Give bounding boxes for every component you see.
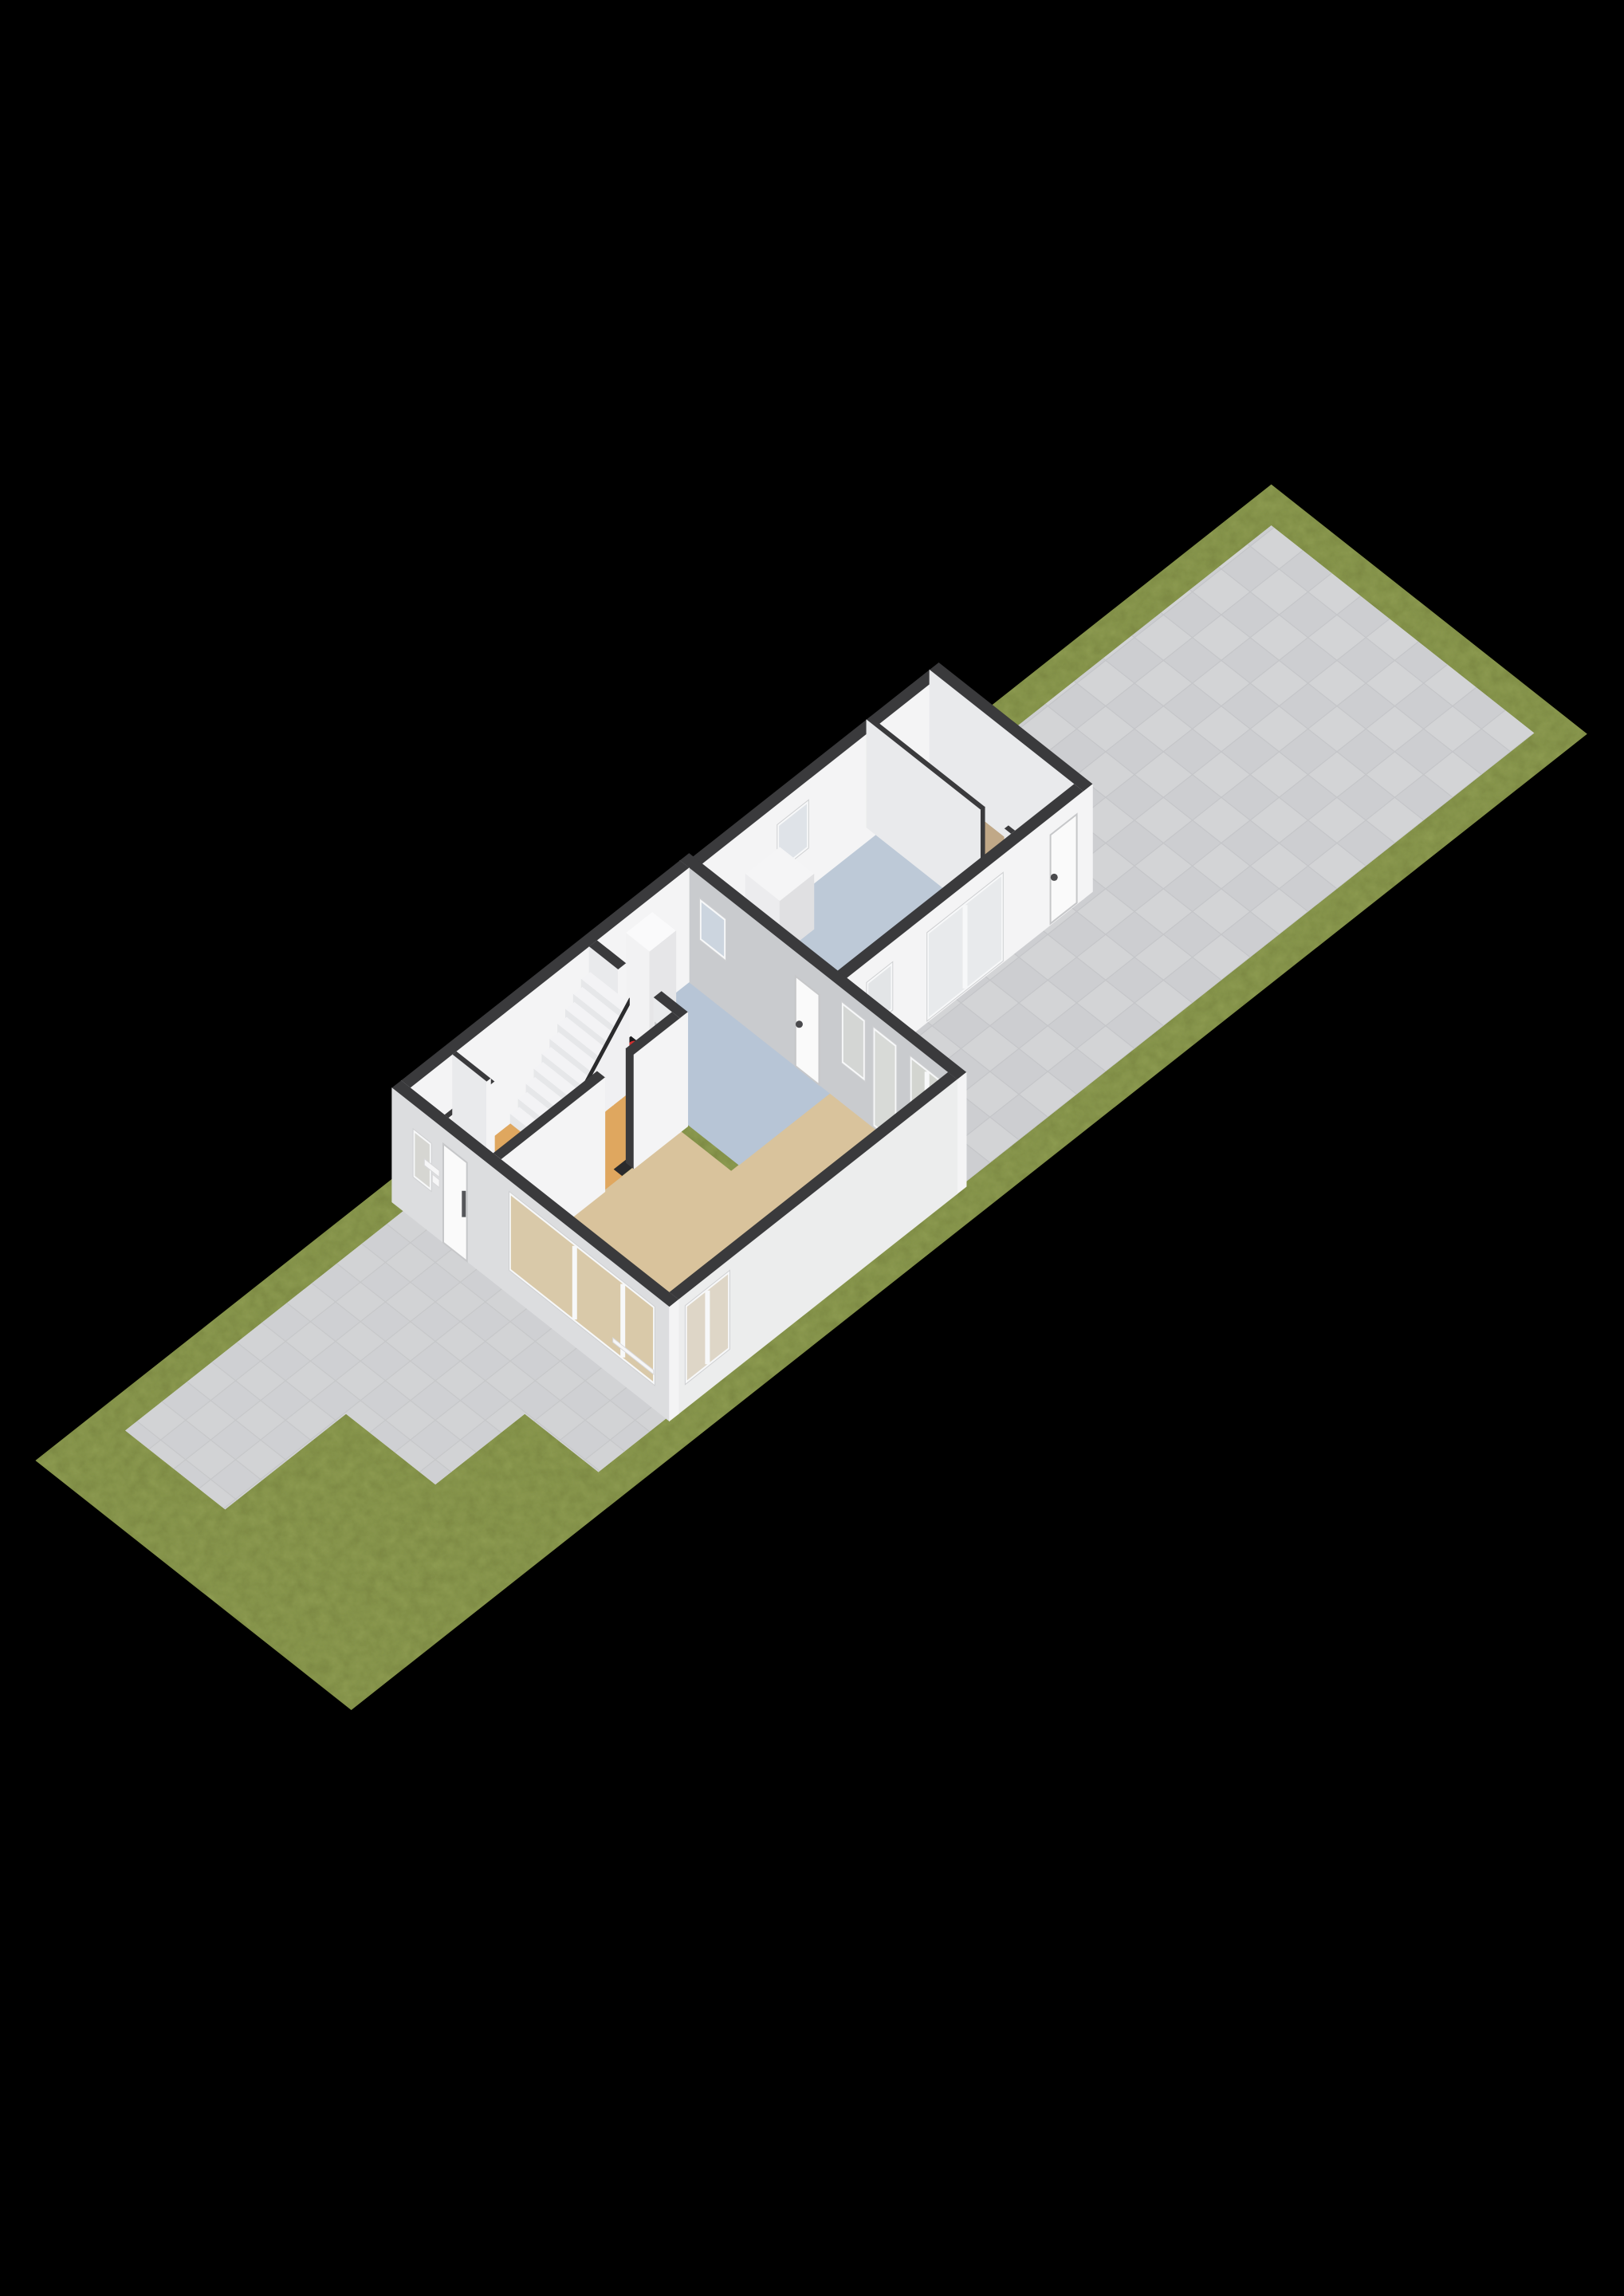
floorplan-scene — [0, 0, 1624, 2296]
floorplan-3d-viewer[interactable]: 3D floor plan of ground floor with garde… — [0, 0, 1624, 2296]
